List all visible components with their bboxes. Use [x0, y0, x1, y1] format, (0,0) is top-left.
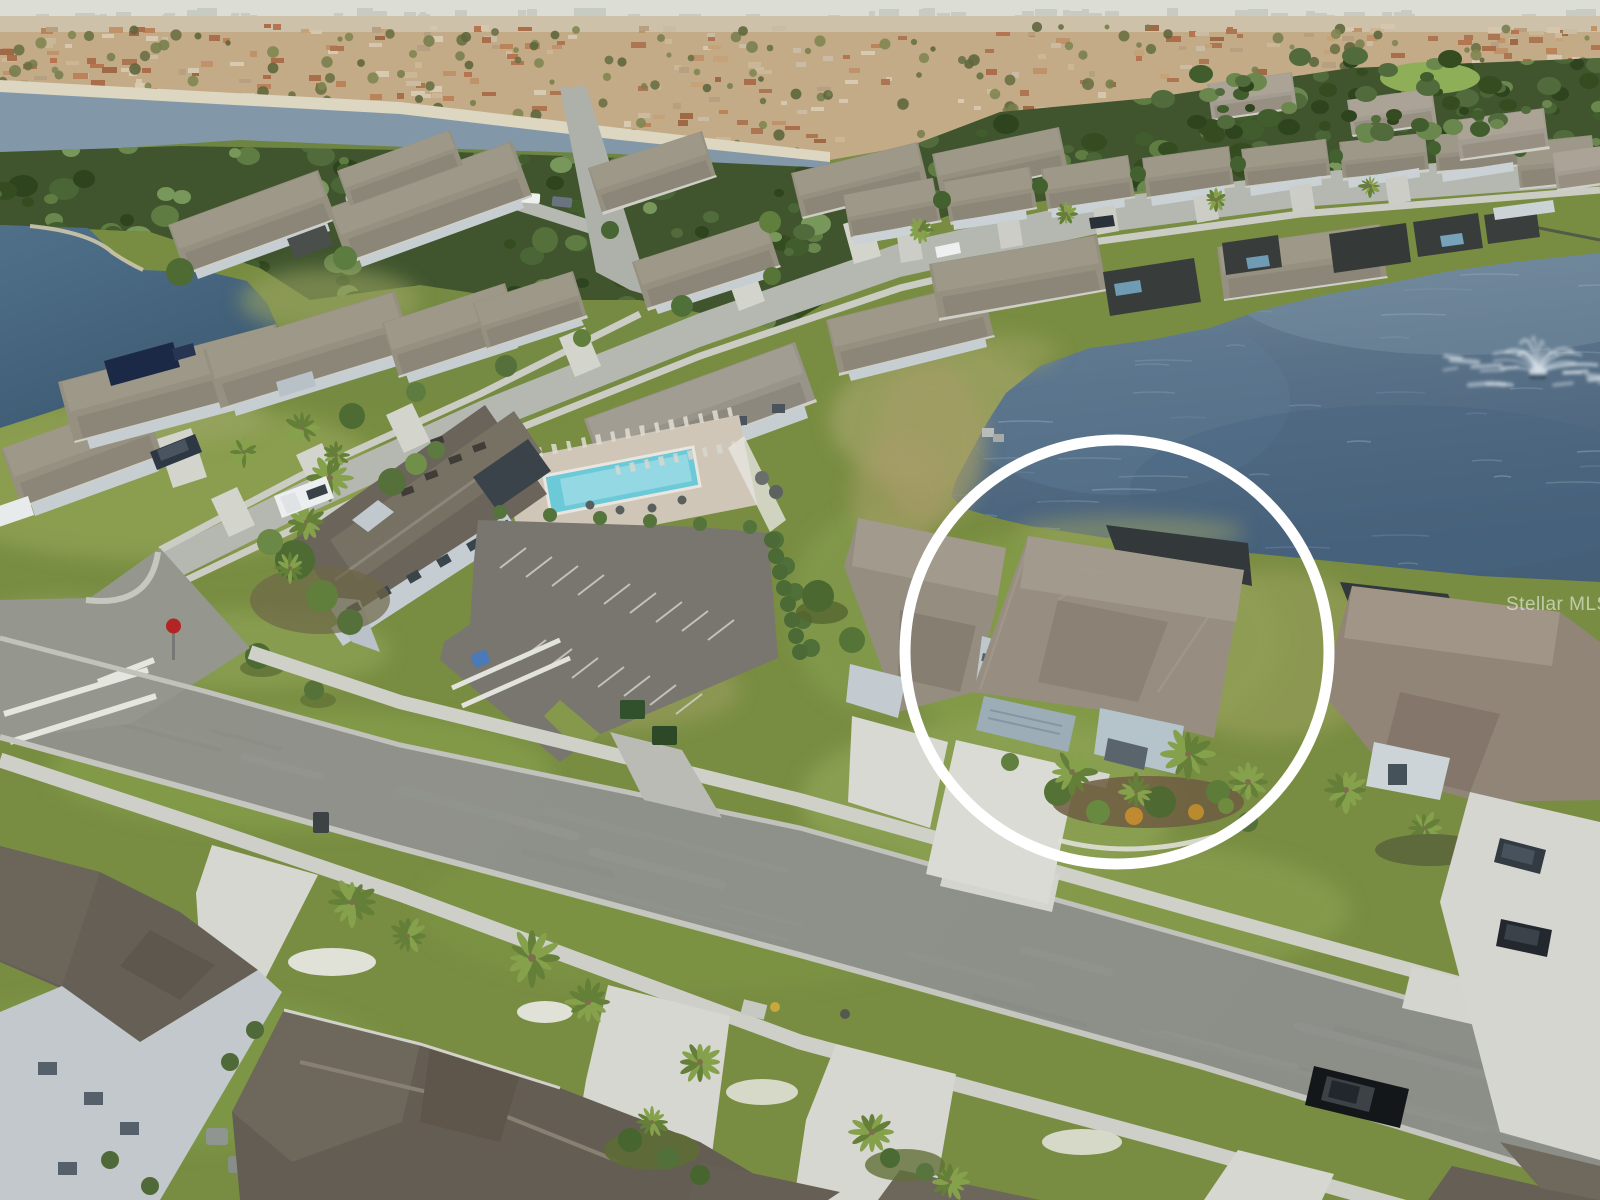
svg-text:Stellar MLS: Stellar MLS — [1506, 594, 1600, 615]
